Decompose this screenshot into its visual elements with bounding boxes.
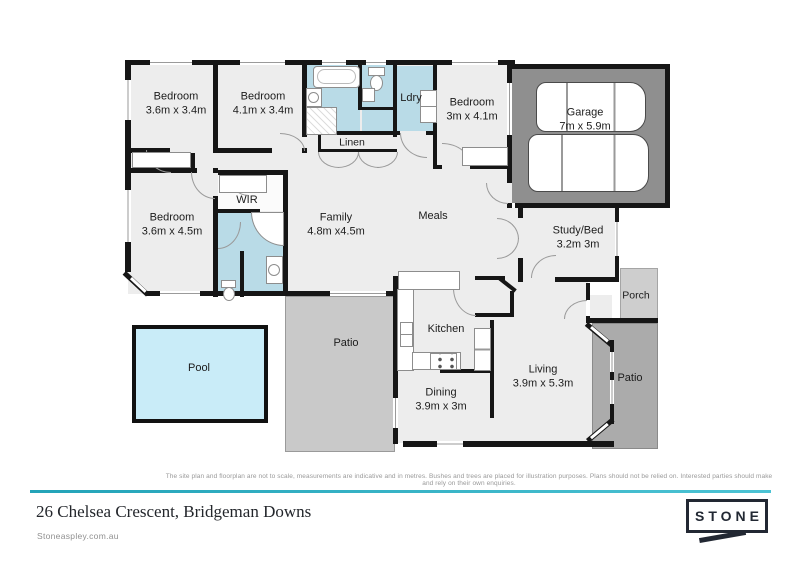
window: [507, 83, 512, 135]
window: [610, 352, 614, 372]
patio-left-floor: [285, 296, 395, 452]
room-label-bedroom-4: Bedroom3.6m x 4.5m: [142, 211, 203, 239]
wall: [512, 64, 670, 69]
basin: [268, 264, 280, 276]
stone-logo: STONE: [686, 499, 768, 533]
laundry-tub: [420, 106, 437, 123]
vanity-basin: [362, 88, 375, 102]
wall: [318, 133, 321, 151]
room-label-bedroom-3: Bedroom3m x 4.1m: [446, 96, 497, 124]
stone-logo-text: STONE: [691, 508, 763, 524]
wall: [518, 208, 523, 218]
kitchen-sink: [400, 334, 413, 347]
toilet-bowl: [223, 287, 235, 301]
wall: [665, 64, 670, 208]
window: [615, 222, 619, 256]
room-label-kitchen: Kitchen: [428, 323, 465, 337]
room-label-wir: WIR: [236, 194, 257, 208]
agency-website: Stoneaspley.com.au: [37, 531, 119, 541]
sliding-door: [393, 398, 398, 428]
wall: [213, 60, 218, 152]
room-label-patio-right: Patio: [617, 372, 642, 386]
window: [160, 291, 200, 296]
window: [322, 60, 346, 65]
window: [125, 80, 131, 120]
sliding-door: [330, 291, 386, 296]
room-label-garage: Garage7m x 5.9m: [559, 106, 610, 134]
property-address: 26 Chelsea Crescent, Bridgeman Downs: [36, 502, 311, 522]
wall: [586, 318, 658, 323]
wall: [475, 313, 514, 317]
car: [528, 134, 649, 192]
bathtub-inner: [317, 69, 356, 84]
floorplan-page: Bedroom3.6m x 3.4m Bedroom4.1m x 3.4m Li…: [0, 0, 800, 565]
wall: [515, 203, 670, 208]
laundry-tub: [420, 90, 437, 107]
window: [452, 60, 498, 65]
window: [366, 60, 386, 65]
room-label-laundry: Ldry: [400, 92, 421, 106]
window: [125, 190, 131, 242]
disclaimer-text: The site plan and floorplan are not to s…: [160, 473, 778, 487]
room-label-study: Study/Bed3.2m 3m: [553, 224, 604, 252]
window: [240, 60, 285, 65]
wardrobe-shelf: [219, 175, 267, 193]
wardrobe-shelf: [132, 152, 191, 168]
wall: [393, 60, 397, 137]
room-label-linen: Linen: [339, 136, 365, 149]
window: [150, 60, 192, 65]
window: [610, 380, 614, 404]
pantry-fridge: [474, 328, 491, 371]
room-label-dining: Dining3.9m x 3m: [415, 386, 466, 414]
accent-divider: [30, 490, 771, 493]
room-label-porch: Porch: [622, 289, 649, 302]
wall: [555, 277, 619, 282]
stove-cooktop: [430, 353, 457, 370]
room-label-family: Family4.8m x4.5m: [307, 211, 364, 239]
wall: [518, 258, 523, 282]
room-label-patio-left: Patio: [333, 337, 358, 351]
wall: [358, 107, 394, 110]
room-label-meals: Meals: [418, 210, 447, 224]
room-label-living: Living3.9m x 5.3m: [513, 363, 574, 391]
room-label-bedroom-1: Bedroom3.6m x 3.4m: [146, 90, 207, 118]
wardrobe-shelf: [462, 147, 508, 166]
room-label-bedroom-2: Bedroom4.1m x 3.4m: [233, 90, 294, 118]
basin: [308, 92, 319, 103]
wall: [403, 441, 614, 447]
room-label-pool: Pool: [188, 362, 210, 376]
kitchen-counter: [398, 271, 460, 290]
window: [437, 441, 463, 447]
shower: [306, 107, 337, 135]
